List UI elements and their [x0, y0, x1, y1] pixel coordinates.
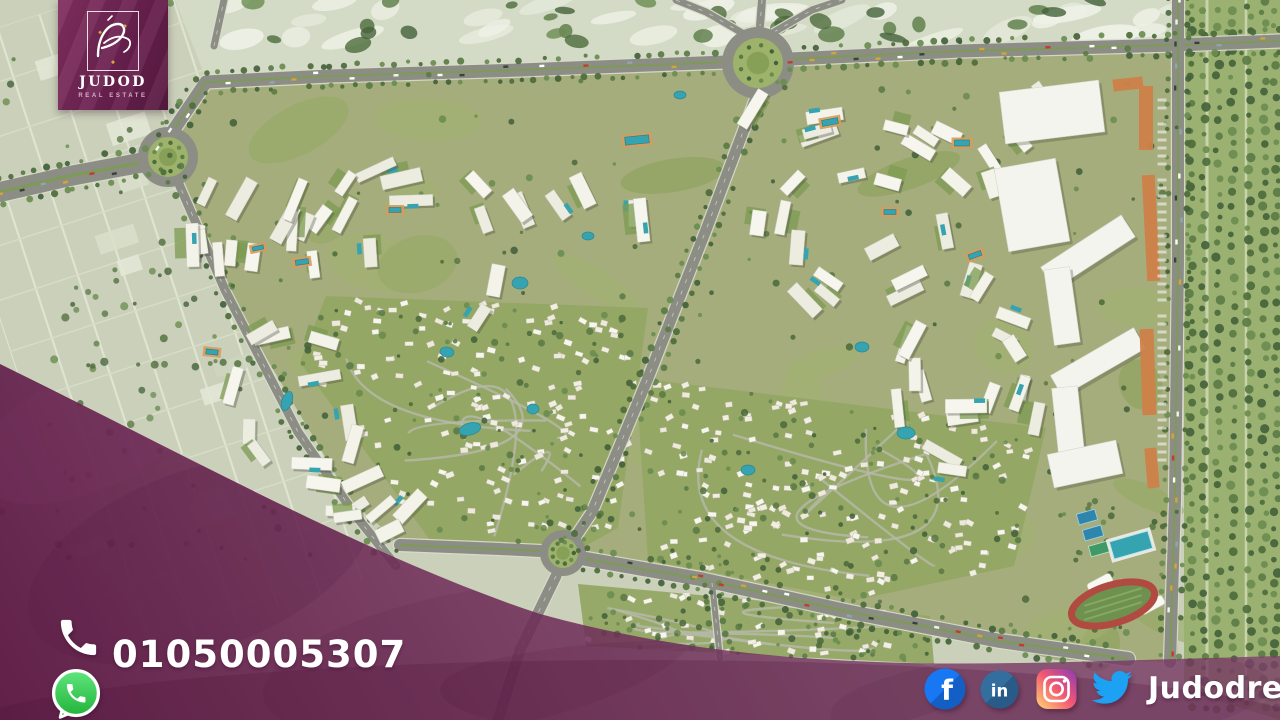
brand-tagline: REAL ESTATE — [58, 93, 168, 99]
phone-number: 01050005307 — [112, 633, 406, 676]
instagram-icon[interactable] — [1036, 669, 1077, 709]
brand-name: JUDOD — [58, 74, 168, 90]
map-green-belt — [1184, 0, 1280, 720]
marketing-banner: JUDOD REAL ESTATE 01050005307 — [0, 0, 1280, 720]
whatsapp-icon[interactable] — [48, 666, 104, 720]
arabic-calligraphy-icon — [88, 12, 138, 70]
linkedin-icon[interactable]: in — [980, 670, 1019, 709]
phone-icon — [55, 614, 102, 661]
social-handle: Judodre — [1148, 671, 1280, 706]
logo-calligraphy-frame — [87, 11, 139, 71]
svg-text:in: in — [991, 681, 1008, 700]
masterplan-map — [0, 0, 1280, 720]
svg-text:f: f — [941, 676, 954, 707]
facebook-icon[interactable]: f — [924, 668, 966, 710]
twitter-icon[interactable] — [1084, 666, 1138, 710]
brand-logo: JUDOD REAL ESTATE — [58, 0, 168, 110]
